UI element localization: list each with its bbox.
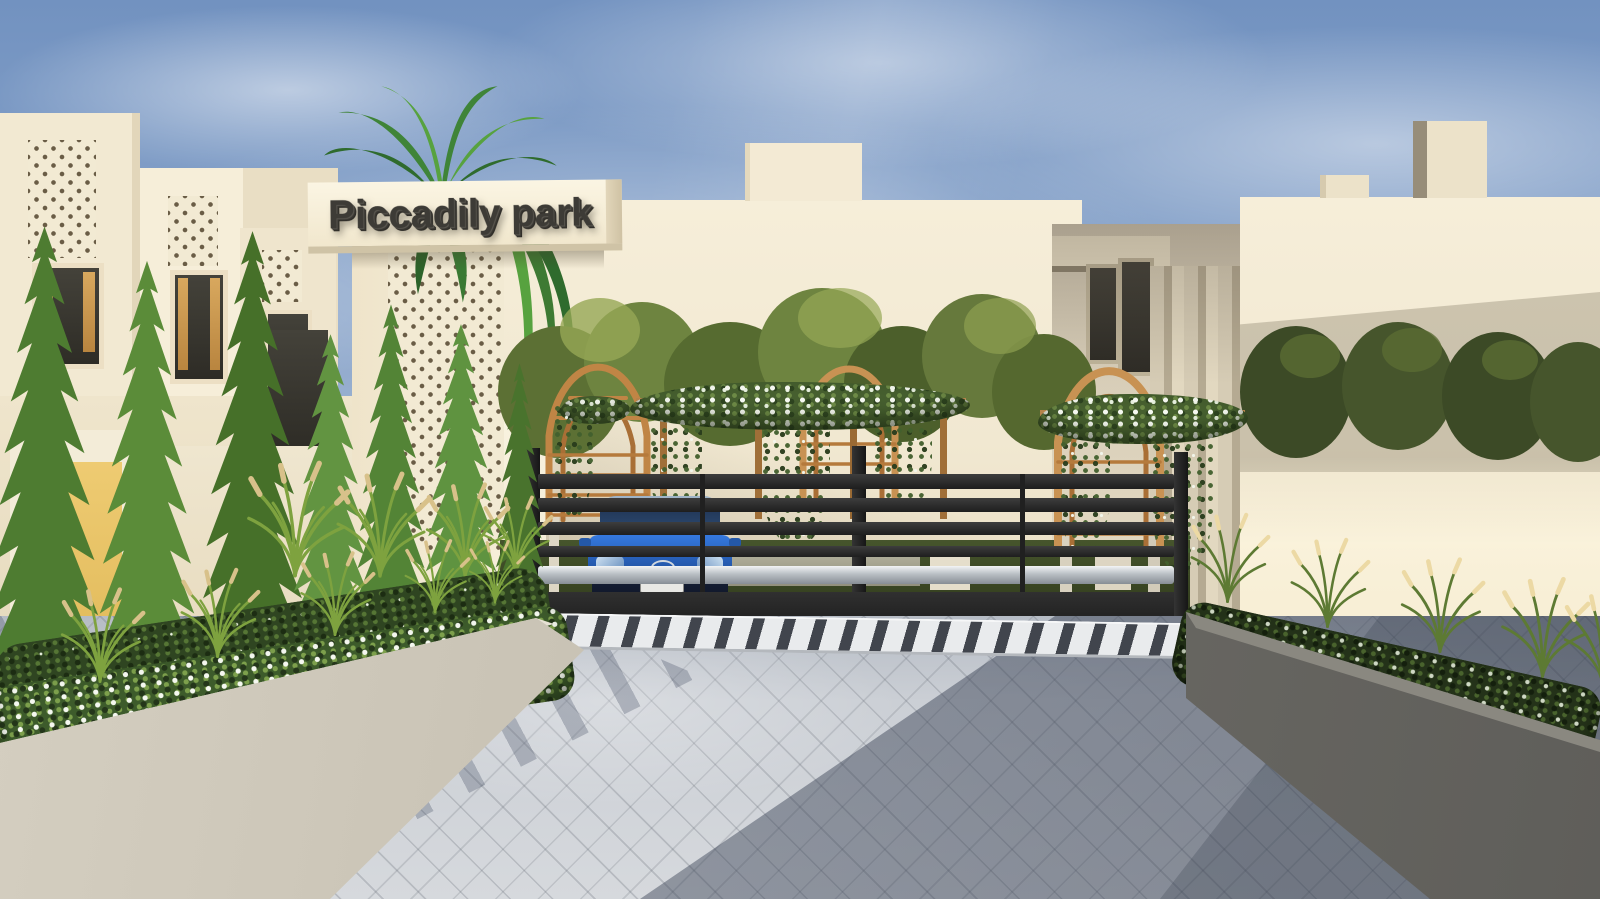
- rendered-scene: Piccadily park: [0, 0, 1600, 899]
